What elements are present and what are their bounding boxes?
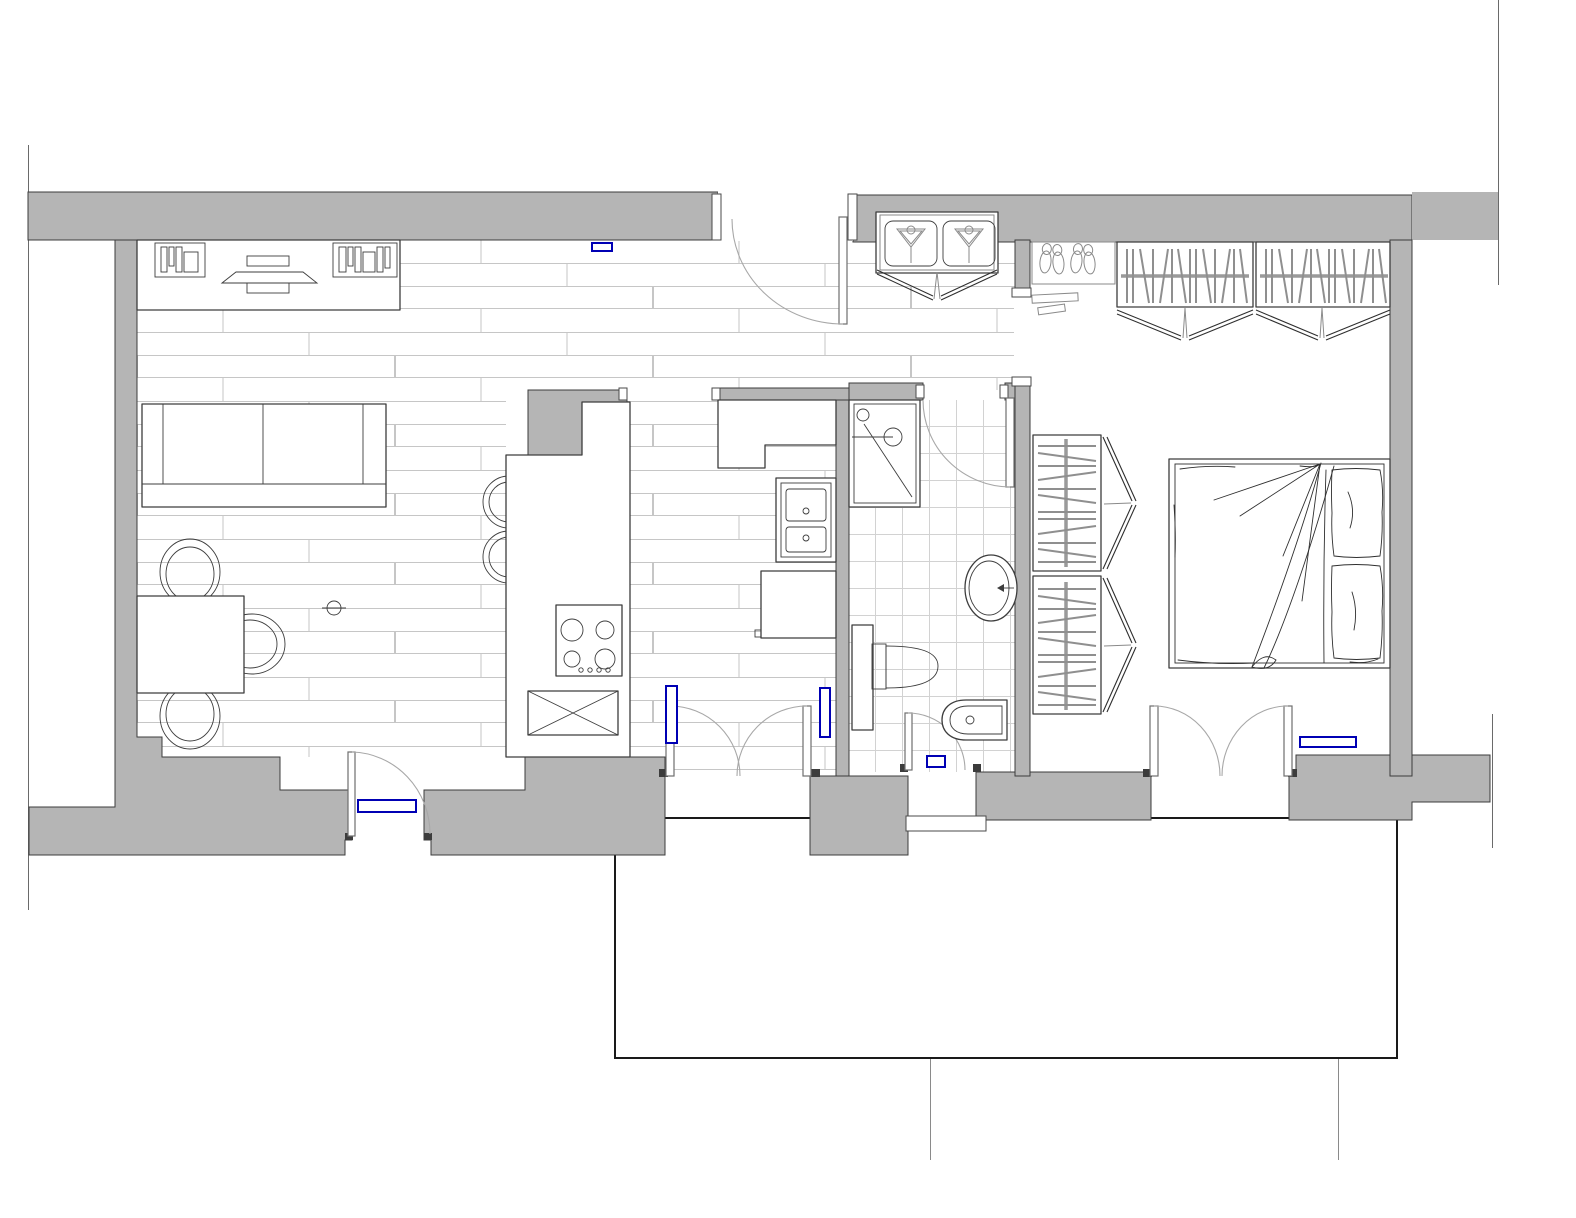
bedroom-door-swing-right: [1222, 706, 1288, 776]
floor-plan-canvas: Apartment floor plan: [0, 0, 1576, 1218]
wardrobe-top-1: [1117, 242, 1253, 340]
wall-bathroom-top: [849, 383, 923, 400]
bedroom-door-leaf-right: [1284, 706, 1292, 776]
bathroom-door-jamb-right: [1000, 385, 1008, 398]
double-sink: [776, 478, 836, 562]
bathroom-door-leaf: [1006, 398, 1014, 487]
sofa-body: [142, 404, 386, 507]
wall-kitchen-bathroom: [836, 400, 849, 776]
radiator-living: [358, 800, 416, 812]
wardrobe-top-2: [1256, 242, 1390, 340]
radiator-kitchen-left: [666, 686, 677, 743]
sofa: [142, 404, 386, 507]
radiator-bathroom: [927, 756, 945, 767]
wall-bathroom-bedroom: [1015, 377, 1030, 776]
entrance-opening: [718, 191, 853, 241]
bedroom-doorway-jamb-bottom: [1012, 377, 1031, 386]
entrance-door-leaf: [839, 217, 847, 324]
bathroom-tall-cabinet: [852, 625, 873, 730]
wall-bottom-hall: [976, 772, 1151, 820]
wall-bottom-kitchen-right: [810, 776, 908, 855]
courtyard: [615, 818, 1397, 1058]
double-bed: [1169, 459, 1390, 668]
bathroom-door-jamb-left: [916, 385, 924, 398]
wardrobe-side-1: [1033, 435, 1136, 571]
bedroom-doorway-jamb-top: [1012, 288, 1031, 297]
kitchen-opening-jamb-left: [619, 388, 627, 400]
wall-kitchen-top: [718, 388, 849, 400]
radiator-kitchen-right: [820, 688, 830, 737]
living-balcony-door: [348, 752, 430, 836]
kitchen-opening-jamb-right: [712, 388, 720, 400]
shoe-rack: [1032, 242, 1115, 284]
cooktop: [556, 605, 622, 676]
entrance-jamb-right: [848, 194, 857, 240]
living-door-swing: [352, 752, 430, 834]
floor-plan-drawing: Apartment floor plan: [0, 0, 1576, 1218]
service-door-leaf: [905, 713, 912, 770]
dining-table: [137, 596, 244, 693]
wall-right: [1390, 240, 1412, 776]
washbasin: [965, 555, 1017, 621]
bedroom-french-doors: [1150, 706, 1292, 776]
service-threshold: [906, 816, 986, 831]
wardrobe-side-2: [1033, 576, 1136, 714]
wall-top-extension: [1412, 192, 1498, 240]
base-unit-crossed: [528, 691, 618, 735]
bedroom: [1032, 242, 1390, 714]
wall-top-left: [28, 192, 718, 240]
kitchen-door-leaf-right: [803, 706, 811, 776]
radiator-hall: [592, 243, 612, 251]
wall-bottom-living-right: [424, 757, 665, 855]
refrigerator: [755, 571, 836, 638]
doormat: [1032, 293, 1078, 315]
living-door-leaf: [348, 752, 355, 836]
bedroom-door-swing-left: [1154, 706, 1220, 776]
radiator-bedroom: [1300, 737, 1356, 747]
entrance-jamb-left: [712, 194, 721, 240]
bedroom-doorway-opening: [1014, 297, 1031, 377]
bedroom-door-leaf-left: [1150, 706, 1158, 776]
shower: [849, 400, 920, 507]
bidet: [942, 700, 1007, 740]
